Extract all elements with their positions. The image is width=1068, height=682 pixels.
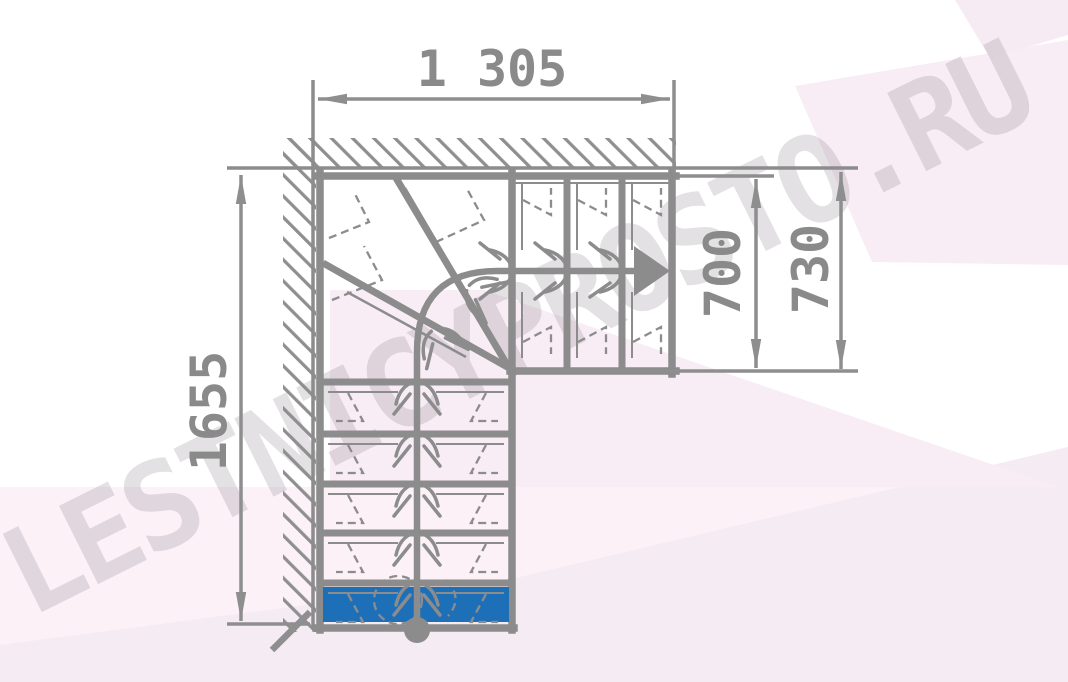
staircase-plan-page: LESTNICYPROSTO.RU	[0, 0, 1068, 682]
walk-start-circle	[404, 617, 430, 643]
top-wall-hatch	[283, 138, 676, 168]
dim-label-total-width: 1 305	[417, 40, 568, 98]
staircase-plan-drawing: LESTNICYPROSTO.RU	[0, 0, 1068, 682]
left-wall-hatch	[283, 138, 316, 632]
dim-label-730: 730	[782, 224, 840, 314]
dim-label-700: 700	[694, 228, 752, 318]
dim-label-1655: 1655	[180, 351, 238, 471]
